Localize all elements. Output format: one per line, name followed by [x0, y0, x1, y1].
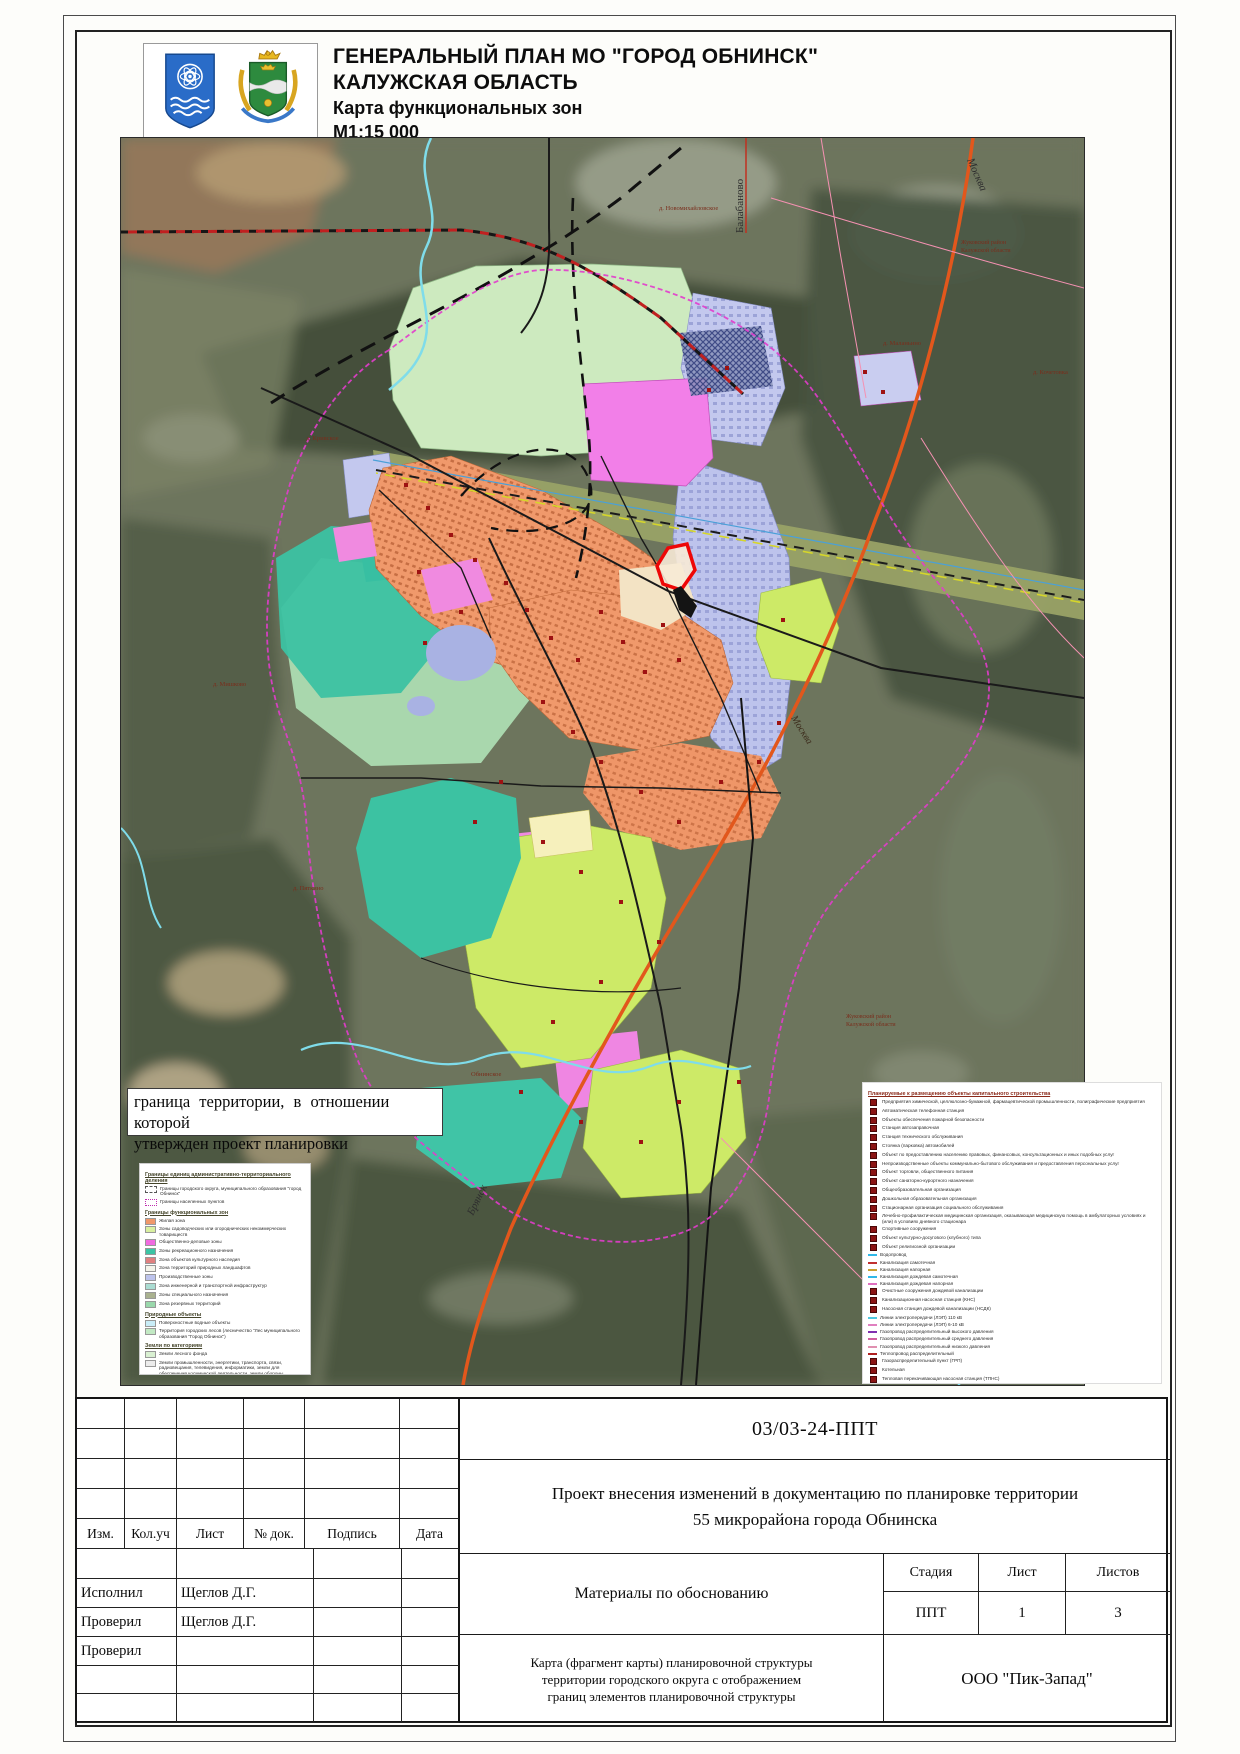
- legend-item: Поверхностные водные объекты: [145, 1320, 305, 1327]
- sheet-value: 1: [979, 1592, 1066, 1635]
- legend-item-label: Спортивные сооружения: [882, 1226, 936, 1231]
- title-line-1: ГЕНЕРАЛЬНЫЙ ПЛАН МО "ГОРОД ОБНИНСК": [333, 44, 818, 70]
- map-label-mishkovo: д. Мишково: [213, 681, 246, 688]
- legend-symbol-sq-icon: [870, 1187, 877, 1194]
- legend-item-label: Жилая зона: [159, 1218, 185, 1223]
- legend-item-label: Дошкольная образовательная организация: [882, 1196, 977, 1201]
- legend-item: Станция автозаправочная: [868, 1125, 1156, 1132]
- legend-heading: Планируемые к размещению объекты капитал…: [868, 1091, 1156, 1097]
- legend-item: Зона объектов культурного наследия: [145, 1257, 305, 1264]
- legend-item-label: Очистные сооружения дождевой канализации: [882, 1288, 983, 1293]
- map-label-zhukovsky-2: Калужской области: [961, 247, 1011, 254]
- legend-item: Насосная станция дождевой канализации (Н…: [868, 1306, 1156, 1313]
- legend-item: Объект по предоставлению населению право…: [868, 1152, 1156, 1159]
- legend-symbol-line-icon: [868, 1283, 877, 1285]
- legend-item: Территория городских лесов (лесничество …: [145, 1328, 305, 1339]
- legend-symbol-sq-icon: [870, 1358, 877, 1365]
- legend-item-label: Линии электропередачи (ЛЭП) 6-10 кВ: [880, 1322, 964, 1327]
- legend-item-label: Общеобразовательная организация: [882, 1187, 961, 1192]
- map-label-krivskoe: д. Кривское: [306, 435, 339, 442]
- legend-symbol-line-icon: [868, 1324, 877, 1326]
- col-date: Дата: [400, 1519, 459, 1549]
- legend-item: Земли промышленности, энергетики, трансп…: [145, 1360, 305, 1375]
- legend-item-label: Объект торговли, общественного питания: [882, 1169, 973, 1174]
- legend-item: Водопровод: [868, 1252, 1156, 1257]
- legend-symbol-sq-icon: [870, 1143, 877, 1150]
- signatures-table: Исполнил Щеглов Д.Г. Проверил Щеглов Д.Г…: [77, 1549, 460, 1723]
- legend-item: Производственные зоны: [145, 1274, 305, 1281]
- legend-symbol-swatch-icon: [145, 1248, 156, 1255]
- legend-item-label: Газораспределительный пункт (ГРП): [882, 1358, 962, 1363]
- legend-item: Предприятия химической, целлюлозно-бумаж…: [868, 1099, 1156, 1106]
- map-label-zhukovsky-2b: Калужской области: [846, 1021, 896, 1028]
- stage-table: Стадия Лист Листов ППТ 1 3: [884, 1554, 1170, 1635]
- name-proveril-1: Щеглов Д.Г.: [177, 1608, 314, 1637]
- map-label-malanino: д. Маланьино: [883, 340, 921, 347]
- map-label-zhukovsky-1b: Жуковский район: [846, 1013, 892, 1020]
- legend-item: Зона территорий природных ландшафтов: [145, 1265, 305, 1272]
- legend-item: Зона инженерной и транспортной инфрастру…: [145, 1283, 305, 1290]
- project-name-line-2: 55 микрорайона города Обнинска: [693, 1507, 937, 1533]
- project-name: Проект внесения изменений в документацию…: [460, 1460, 1170, 1554]
- col-kol: Кол.уч: [125, 1519, 177, 1549]
- legend-symbol-sq-icon: [870, 1196, 877, 1203]
- legend-symbol-swatch-icon: [145, 1226, 156, 1233]
- legend-item-label: Предприятия химической, целлюлозно-бумаж…: [882, 1099, 1145, 1104]
- genplan-sheet: ГЕНЕРАЛЬНЫЙ ПЛАН МО "ГОРОД ОБНИНСК" КАЛУ…: [0, 0, 1240, 1754]
- legend-item: Границы городского округа, муниципальног…: [145, 1186, 305, 1197]
- legend-item-label: Канализация дождевая напорная: [880, 1281, 953, 1286]
- legend-item-label: Зона резервных территорий: [159, 1301, 221, 1306]
- col-doc: № док.: [244, 1519, 305, 1549]
- legend-item-label: Газопровод распределительный среднего да…: [880, 1336, 993, 1341]
- legend-item: Границы населенных пунктов: [145, 1199, 305, 1206]
- legend-item-label: Зона объектов культурного наследия: [159, 1257, 240, 1262]
- legend-item: Газопровод распределительный низкого дав…: [868, 1344, 1156, 1349]
- legend-item-label: Земли лесного фонда: [159, 1351, 207, 1356]
- legend-item-label: Котельная: [882, 1367, 905, 1372]
- legend-symbol-sq-icon: [870, 1297, 877, 1304]
- legend-item-label: Канализация напорная: [880, 1267, 930, 1272]
- legend-symbol-sq-icon: [870, 1244, 877, 1251]
- note-line-1: граница территории, в отношении которой: [134, 1091, 436, 1133]
- organization-cell: ООО "Пик-Запад": [884, 1635, 1170, 1723]
- document-number: 03/03-24-ППТ: [460, 1399, 1170, 1460]
- legend-item: Котельная: [868, 1367, 1156, 1374]
- legend-item-label: Объект религиозной организации: [882, 1244, 955, 1249]
- legend-symbol-sq-icon: [870, 1099, 877, 1106]
- legend-symbol-swatch-icon: [145, 1351, 156, 1358]
- legend-item: Непроизводственные объекты коммунально-б…: [868, 1161, 1156, 1168]
- legend-item-label: Земли промышленности, энергетики, трансп…: [159, 1360, 305, 1375]
- map-label-kochetovka: д. Кочетовка: [1033, 369, 1068, 376]
- materials-cell: Материалы по обоснованию: [460, 1554, 884, 1635]
- stage-header: Стадия: [884, 1554, 979, 1592]
- legend-item-label: Территория городских лесов (лесничество …: [159, 1328, 305, 1339]
- legend-item: Канализационная насосная станция (КНС): [868, 1297, 1156, 1304]
- legend-symbol-swatch-icon: [145, 1301, 156, 1308]
- legend-item: Тепловая перекачивающая насосная станция…: [868, 1376, 1156, 1383]
- legend-item-label: Объекты обеспечения пожарной безопасност…: [882, 1117, 984, 1122]
- legend-item: Очистные сооружения дождевой канализации: [868, 1288, 1156, 1295]
- legend-symbol-swatch-icon: [145, 1239, 156, 1246]
- legend-item: Газопровод распределительный среднего да…: [868, 1336, 1156, 1341]
- legend-item-label: Стоянка (парковка) автомобилей: [882, 1143, 954, 1148]
- legend-item: Общеобразовательная организация: [868, 1187, 1156, 1194]
- legend-symbol-dline-icon: [868, 1331, 877, 1333]
- col-list: Лист: [177, 1519, 244, 1549]
- legend-symbol-sq-icon: [870, 1108, 877, 1115]
- legend-item-label: Границы городского округа, муниципальног…: [160, 1186, 305, 1197]
- legend-item: Канализация дождевая самотечная: [868, 1274, 1156, 1279]
- legend-item-label: Канализация дождевая самотечная: [880, 1274, 958, 1279]
- legend-item: Объекты обеспечения пожарной безопасност…: [868, 1117, 1156, 1124]
- legend-item-label: Зона инженерной и транспортной инфрастру…: [159, 1283, 267, 1288]
- stage-value: ППТ: [884, 1592, 979, 1635]
- legend-item-label: Водопровод: [880, 1252, 906, 1257]
- sheet-content-title: Карта (фрагмент карты) планировочной стр…: [460, 1635, 884, 1723]
- legend-item-label: Непроизводственные объекты коммунально-б…: [882, 1161, 1119, 1166]
- legend-symbol-swatch-icon: [145, 1218, 156, 1225]
- legend-symbol-sq-icon: [870, 1376, 877, 1383]
- map-label-pyatkino: д. Пяткино: [293, 885, 323, 892]
- legend-symbol-dline-icon: [868, 1338, 877, 1340]
- legend-item: Зона резервных территорий: [145, 1301, 305, 1308]
- legend-item: Жилая зона: [145, 1218, 305, 1225]
- legend-item: Канализация дождевая напорная: [868, 1281, 1156, 1286]
- map-label-novomikhaylovskoe: д. Новомихайловское: [659, 205, 718, 212]
- legend-symbol-swatch-icon: [145, 1283, 156, 1290]
- map-label-zhukovsky-1: Жуковский район: [961, 239, 1007, 246]
- sheet-content-line-1: Карта (фрагмент карты) планировочной стр…: [530, 1654, 812, 1671]
- legend-symbol-swatch-icon: [145, 1265, 156, 1272]
- legend-heading: Природные объекты: [145, 1312, 305, 1318]
- legend-symbol-sq-icon: [870, 1306, 877, 1313]
- legend-item: Объект религиозной организации: [868, 1244, 1156, 1251]
- legend-item-label: Канализационная насосная станция (КНС): [882, 1297, 975, 1302]
- legend-item-label: Газопровод распределительный высокого да…: [880, 1329, 994, 1334]
- note-line-2: утвержден проект планировки: [134, 1133, 436, 1154]
- legend-symbol-sq-icon: [870, 1152, 877, 1159]
- legend-heading: Границы единиц административно-территори…: [145, 1172, 305, 1184]
- legend-symbol-line-icon: [868, 1254, 877, 1256]
- legend-item: Стоянка (парковка) автомобилей: [868, 1143, 1156, 1150]
- legend-item-label: Линии электропередачи (ЛЭП) 110 кВ: [880, 1315, 962, 1320]
- legend-symbol-swatch-icon: [145, 1328, 156, 1335]
- legend-symbol-swatch-icon: [145, 1360, 156, 1367]
- title-block: Изм. Кол.уч Лист № док. Подпись Дата Исп…: [75, 1397, 1168, 1723]
- legend-item: Линии электропередачи (ЛЭП) 110 кВ: [868, 1315, 1156, 1320]
- legend-item: Газораспределительный пункт (ГРП): [868, 1358, 1156, 1365]
- legend-symbol-admin2-icon: [145, 1199, 157, 1206]
- legend-item: Газопровод распределительный высокого да…: [868, 1329, 1156, 1334]
- legend-item-label: Производственные зоны: [159, 1274, 213, 1279]
- legend-item-label: Объект культурно-досугового (клубного) т…: [882, 1235, 981, 1240]
- legend-item-label: Станция технического обслуживания: [882, 1134, 963, 1139]
- obninsk-coat-of-arms-icon: [161, 51, 219, 131]
- legend-item: Линии электропередачи (ЛЭП) 6-10 кВ: [868, 1322, 1156, 1327]
- kaluga-oblast-coat-of-arms-icon: [235, 49, 301, 133]
- legend-item: Канализация напорная: [868, 1267, 1156, 1272]
- sheet-content-line-3: границ элементов планировочной структуры: [547, 1688, 795, 1705]
- legend-symbol-sq-icon: [870, 1235, 877, 1242]
- role-proveril-1: Проверил: [77, 1608, 177, 1637]
- map-legend-left: Границы единиц административно-территори…: [139, 1163, 311, 1375]
- legend-symbol-line-icon: [868, 1262, 877, 1264]
- legend-item-label: Общественно-деловые зоны: [159, 1239, 222, 1244]
- legend-item-label: Зоны специального назначения: [159, 1292, 228, 1297]
- legend-symbol-swatch-icon: [145, 1320, 156, 1327]
- legend-item-label: Зона территорий природных ландшафтов: [159, 1265, 251, 1270]
- legend-item-label: Канализация самотечная: [880, 1260, 935, 1265]
- legend-symbol-admin1-icon: [145, 1186, 157, 1193]
- project-boundary-note: граница территории, в отношении которой …: [127, 1088, 443, 1136]
- sheets-value: 3: [1066, 1592, 1170, 1635]
- legend-heading: Земли по категориям: [145, 1343, 305, 1349]
- legend-symbol-sq-icon: [870, 1117, 877, 1124]
- legend-symbol-sq-icon: [870, 1169, 877, 1176]
- legend-item-label: Тепловая перекачивающая насосная станция…: [882, 1376, 999, 1381]
- legend-item: Общественно-деловые зоны: [145, 1239, 305, 1246]
- legend-symbol-swatch-icon: [145, 1274, 156, 1281]
- legend-item-label: Объект по предоставлению населению право…: [882, 1152, 1114, 1157]
- legend-item: Земли лесного фонда: [145, 1351, 305, 1358]
- sheet-content-line-2: территории городского округа с отображен…: [542, 1671, 801, 1688]
- revision-table: Изм. Кол.уч Лист № док. Подпись Дата: [77, 1399, 460, 1549]
- col-sign: Подпись: [305, 1519, 400, 1549]
- legend-symbol-dline-icon: [868, 1276, 877, 1278]
- legend-item: Зоны специального назначения: [145, 1292, 305, 1299]
- name-proveril-2: [177, 1637, 314, 1666]
- legend-item: Автоматическая телефонная станция: [868, 1108, 1156, 1115]
- legend-item-label: Насосная станция дождевой канализации (Н…: [882, 1306, 991, 1311]
- col-izm: Изм.: [77, 1519, 125, 1549]
- sheets-header: Листов: [1066, 1554, 1170, 1592]
- legend-item: Стационарная организация социального обс…: [868, 1205, 1156, 1212]
- title-line-3: Карта функциональных зон: [333, 96, 818, 120]
- legend-item-label: Границы населенных пунктов: [160, 1199, 224, 1204]
- legend-item: Теплопровод распределительный: [868, 1351, 1156, 1356]
- legend-symbol-sq-icon: [870, 1134, 877, 1141]
- legend-symbol-line-icon: [868, 1353, 877, 1355]
- map-legend-right: Планируемые к размещению объекты капитал…: [862, 1082, 1162, 1384]
- legend-symbol-swatch-icon: [145, 1292, 156, 1299]
- project-name-line-1: Проект внесения изменений в документацию…: [552, 1481, 1078, 1507]
- legend-item-label: Станция автозаправочная: [882, 1125, 939, 1130]
- legend-item: Станция технического обслуживания: [868, 1134, 1156, 1141]
- legend-item-label: Автоматическая телефонная станция: [882, 1108, 964, 1113]
- legend-symbol-sq-icon: [870, 1178, 877, 1185]
- sheet-header: Лист: [979, 1554, 1066, 1592]
- legend-item: Объект культурно-досугового (клубного) т…: [868, 1235, 1156, 1242]
- role-proveril-2: Проверил: [77, 1637, 177, 1666]
- legend-item-label: Лечебно-профилактическая медицинская орг…: [882, 1213, 1156, 1224]
- legend-item: Лечебно-профилактическая медицинская орг…: [868, 1213, 1156, 1224]
- legend-item: Объект торговли, общественного питания: [868, 1169, 1156, 1176]
- title-line-2: КАЛУЖСКАЯ ОБЛАСТЬ: [333, 70, 818, 96]
- map-label-obninskoe: Обнинское: [471, 1071, 501, 1078]
- legend-item: Объект санаторно-курортного назначения: [868, 1178, 1156, 1185]
- name-ispolnil: Щеглов Д.Г.: [177, 1579, 314, 1608]
- legend-item-label: Стационарная организация социального обс…: [882, 1205, 1003, 1210]
- role-ispolnil: Исполнил: [77, 1579, 177, 1608]
- coat-of-arms-box: [143, 43, 318, 139]
- map-label-balabanovo: Балабаново: [734, 178, 746, 233]
- legend-item-label: Зоны рекреационного назначения: [159, 1248, 233, 1253]
- legend-symbol-line-icon: [868, 1269, 877, 1271]
- legend-symbol-sq-icon: [870, 1125, 877, 1132]
- legend-symbol-swatch-icon: [145, 1257, 156, 1264]
- legend-item: Зоны рекреационного назначения: [145, 1248, 305, 1255]
- legend-symbol-sq-icon: [870, 1226, 877, 1233]
- legend-symbol-sq-icon: [870, 1161, 877, 1168]
- legend-heading: Границы функциональных зон: [145, 1210, 305, 1216]
- legend-symbol-sq-icon: [870, 1213, 877, 1220]
- legend-item: Канализация самотечная: [868, 1260, 1156, 1265]
- legend-symbol-line-icon: [868, 1317, 877, 1319]
- legend-symbol-sq-icon: [870, 1205, 877, 1212]
- legend-item-label: Поверхностные водные объекты: [159, 1320, 230, 1325]
- legend-item-label: Теплопровод распределительный: [880, 1351, 954, 1356]
- sheet-title: ГЕНЕРАЛЬНЫЙ ПЛАН МО "ГОРОД ОБНИНСК" КАЛУ…: [333, 44, 818, 144]
- legend-item-label: Объект санаторно-курортного назначения: [882, 1178, 974, 1183]
- legend-item: Зоны садоводческих или огороднических не…: [145, 1226, 305, 1237]
- legend-item-label: Газопровод распределительный низкого дав…: [880, 1344, 990, 1349]
- legend-item: Спортивные сооружения: [868, 1226, 1156, 1233]
- legend-symbol-dline-icon: [868, 1346, 877, 1348]
- legend-item: Дошкольная образовательная организация: [868, 1196, 1156, 1203]
- legend-item-label: Зоны садоводческих или огороднических не…: [159, 1226, 305, 1237]
- legend-symbol-sq-icon: [870, 1367, 877, 1374]
- legend-symbol-sq-icon: [870, 1288, 877, 1295]
